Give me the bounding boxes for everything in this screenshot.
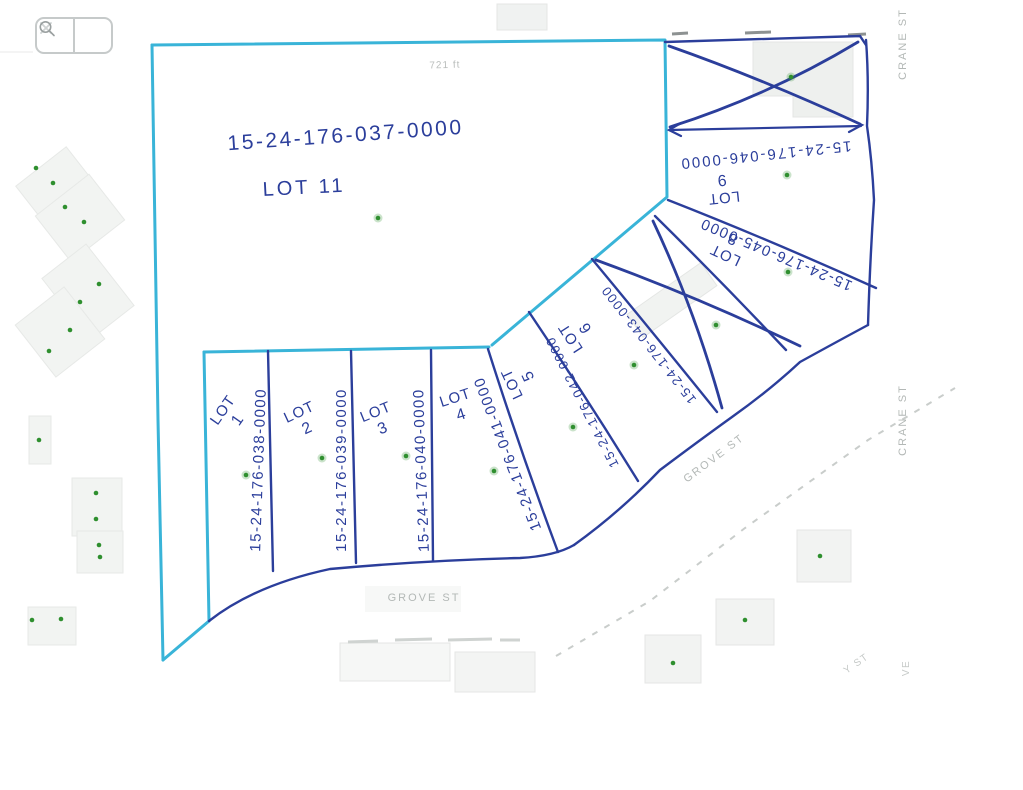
svg-text:2: 2: [299, 419, 314, 438]
lot1-lot2-line: [268, 351, 273, 571]
street-label-partial-vertical: VE: [901, 660, 912, 676]
grove-st-frontage-line: [574, 325, 868, 545]
svg-text:6: 6: [576, 319, 595, 336]
scanned-plat-map-viewer: GROVE ST GROVE ST CRANE ST CRANE ST Y ST…: [0, 0, 1023, 790]
lot2-label: LOT 2: [281, 398, 325, 443]
viewer-toolbar: [35, 17, 113, 54]
street-label-grove-st-bottom: GROVE ST: [388, 592, 461, 604]
lot4-label: LOT 4: [437, 385, 478, 428]
street-label-crane-st-middle: CRANE ST: [897, 384, 909, 456]
svg-text:9: 9: [717, 171, 728, 189]
street-label-crane-st-top: CRANE ST: [897, 8, 909, 80]
lot1-parcel-number: 15-24-176-038-0000: [247, 388, 270, 552]
street-label-grove-st-diagonal: GROVE ST: [681, 432, 746, 485]
east-boundary-line: [866, 40, 874, 325]
search-button[interactable]: [73, 19, 111, 52]
svg-text:3: 3: [375, 419, 390, 438]
street-label-partial-diagonal: Y ST: [842, 651, 871, 676]
lot3-label: LOT 3: [358, 398, 401, 443]
svg-text:1: 1: [228, 412, 247, 429]
search-icon: [37, 19, 57, 39]
lot3-parcel-number: 15-24-176-040-0000: [410, 388, 433, 552]
lot-boundary-lines: [209, 36, 876, 621]
lot9-parcel-number: 15-24-176-046-0000: [679, 137, 853, 172]
lot11-label: LOT 11: [262, 175, 346, 201]
lot2-lot3-line: [351, 351, 356, 563]
measurement-label: 721 ft: [429, 59, 460, 71]
lot1-label: LOT 1: [207, 392, 254, 438]
lot5-label: LOT 5: [498, 358, 543, 402]
svg-text:LOT: LOT: [707, 187, 741, 207]
lot2-parcel-number: 15-24-176-039-0000: [333, 388, 350, 552]
dimension-arrow-line: [669, 119, 862, 136]
lot5-parcel-number: 15-24-176-042-0000: [542, 334, 621, 470]
lot9-label: LOT 9: [705, 169, 741, 207]
svg-text:5: 5: [519, 368, 538, 383]
lot4-parcel-number: 15-24-176-041-0000: [471, 374, 546, 533]
svg-text:4: 4: [454, 406, 468, 425]
lot11-parcel-number: 15-24-176-037-0000: [227, 116, 465, 155]
plat-map-canvas: GROVE ST GROVE ST CRANE ST CRANE ST Y ST…: [0, 0, 1023, 790]
left-margin-parcels: [15, 147, 134, 645]
